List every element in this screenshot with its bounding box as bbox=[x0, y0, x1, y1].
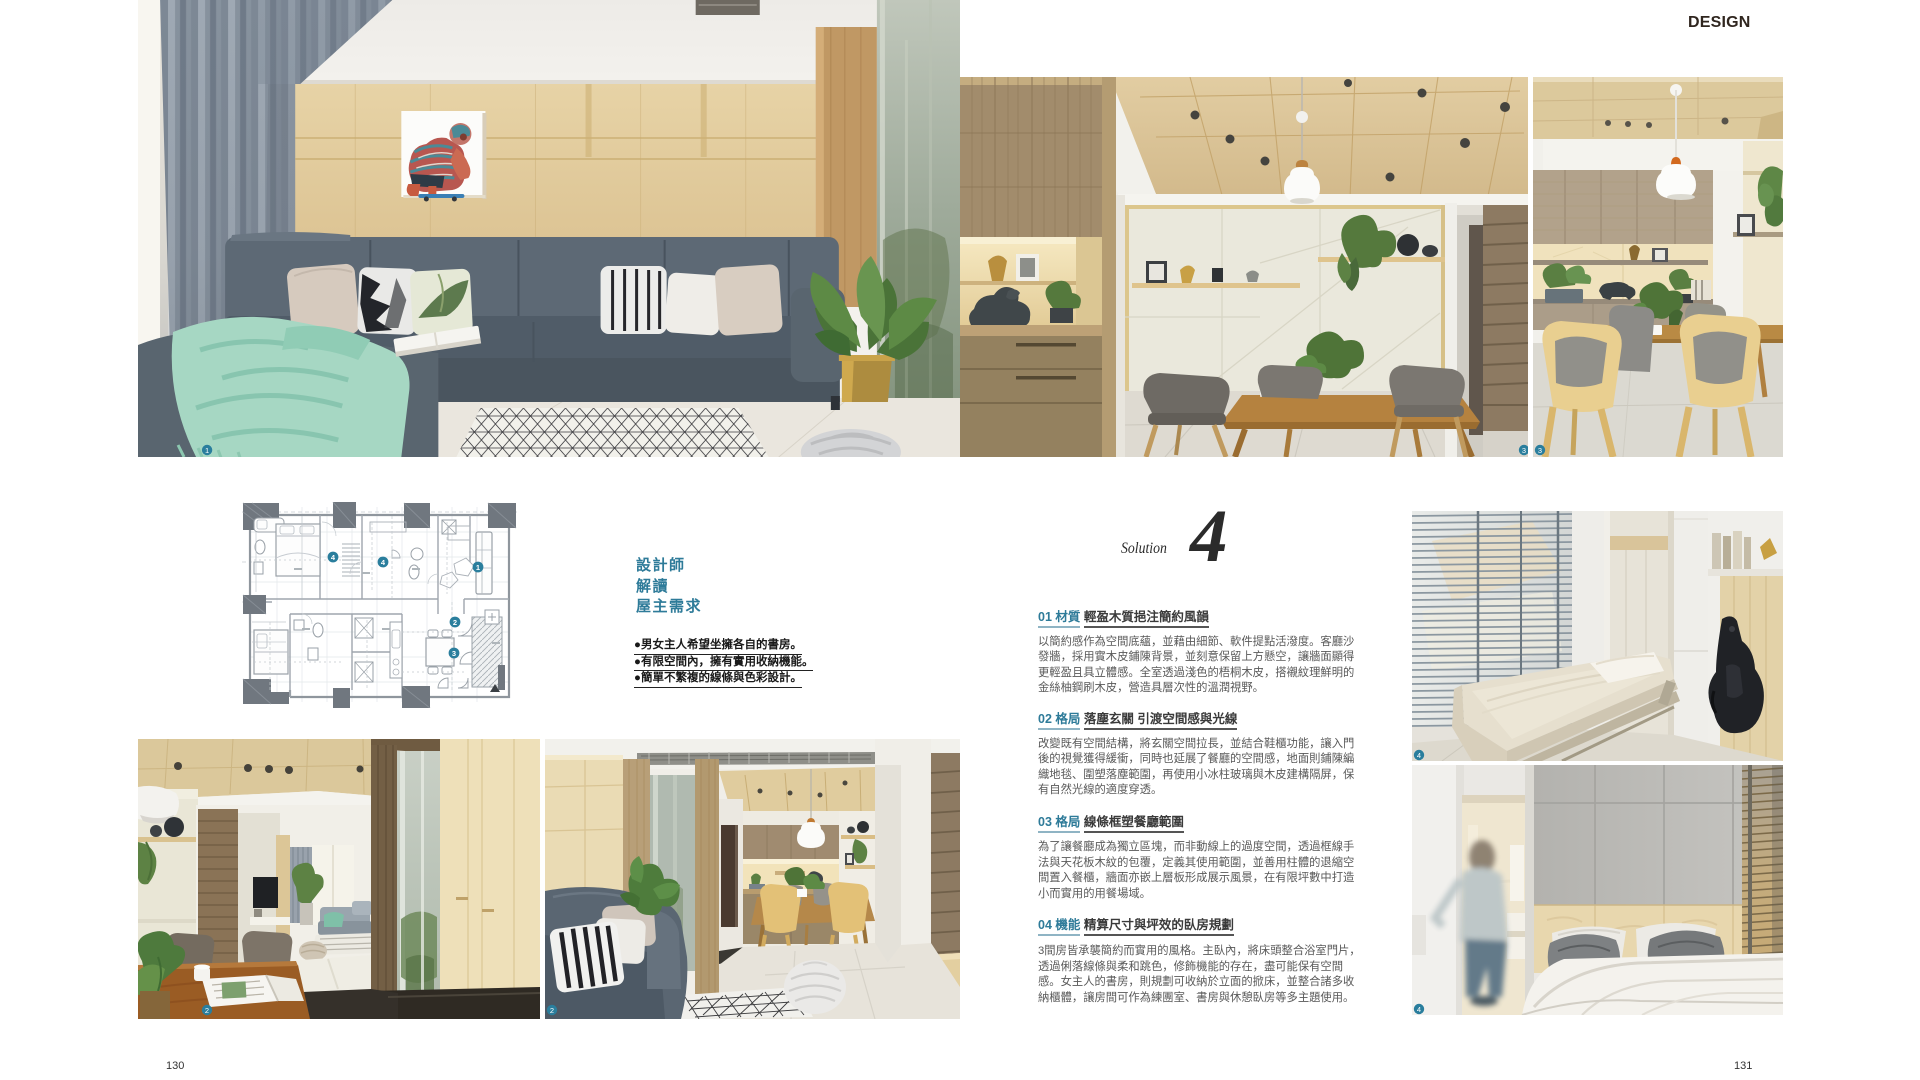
svg-text:3: 3 bbox=[452, 649, 456, 658]
svg-text:3: 3 bbox=[1538, 446, 1542, 455]
svg-text:3: 3 bbox=[1522, 446, 1526, 455]
svg-text:2: 2 bbox=[205, 1006, 209, 1015]
svg-text:2: 2 bbox=[550, 1006, 554, 1015]
svg-text:2: 2 bbox=[453, 618, 457, 627]
svg-text:1: 1 bbox=[205, 446, 209, 455]
svg-text:4: 4 bbox=[1417, 751, 1421, 760]
svg-text:1: 1 bbox=[476, 563, 480, 572]
svg-text:4: 4 bbox=[1417, 1005, 1421, 1014]
